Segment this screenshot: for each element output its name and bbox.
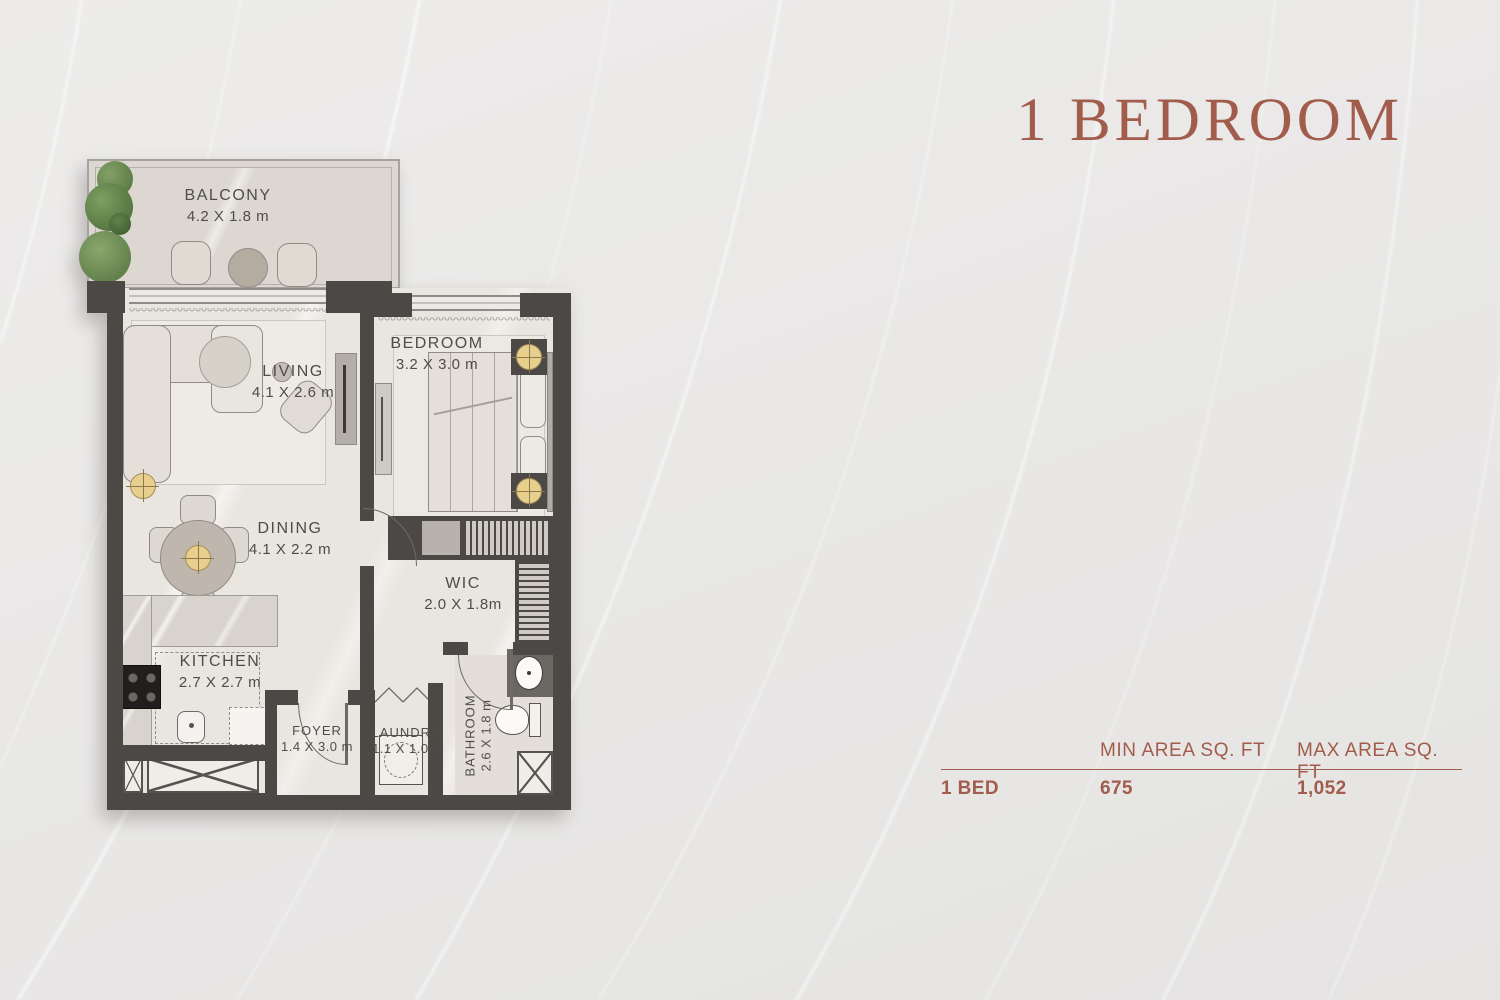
room-name: BATHROOM xyxy=(463,694,478,776)
room-label-wic: WIC 2.0 X 1.8m xyxy=(413,575,513,613)
tree-plant xyxy=(109,213,131,235)
sofa xyxy=(123,325,171,483)
closet-shelf xyxy=(422,521,460,555)
balcony-chair xyxy=(277,243,317,287)
wall-segment xyxy=(265,795,571,810)
wall-segment xyxy=(553,293,571,810)
room-dims: 2.0 X 1.8m xyxy=(413,596,513,613)
area-table: MIN AREA SQ. FT MAX AREA SQ. FT 1 BED 67… xyxy=(941,738,1462,800)
room-name: KITCHEN xyxy=(160,653,280,671)
page-title: 1 BEDROOM xyxy=(1016,90,1403,151)
wall-segment xyxy=(374,293,412,317)
room-name: FOYER xyxy=(269,723,365,738)
room-dims: 2.6 X 1.8 m xyxy=(479,694,494,776)
living-window xyxy=(129,288,326,304)
dresser-handle xyxy=(381,397,383,461)
row-label: 1 BED xyxy=(941,778,999,800)
room-label-kitchen: KITCHEN 2.7 X 2.7 m xyxy=(160,653,280,691)
wic-closet xyxy=(515,560,553,652)
shaft-box xyxy=(147,757,259,793)
tree-plant xyxy=(79,231,131,283)
ceiling-light xyxy=(516,344,542,370)
bedroom-window xyxy=(412,295,520,311)
room-dims: 4.1 X 2.6 m xyxy=(233,384,353,401)
min-area-header: MIN AREA SQ. FT xyxy=(1100,740,1265,762)
room-label-living: LIVING 4.1 X 2.6 m xyxy=(233,363,353,401)
room-name: LIVING xyxy=(233,363,353,381)
sink-drain xyxy=(527,671,531,675)
room-label-foyer: FOYER 1.4 X 3.0 m xyxy=(269,723,365,754)
x-mark xyxy=(149,759,257,791)
wall-segment xyxy=(107,745,267,761)
room-name: DINING xyxy=(230,520,350,538)
room-name: WIC xyxy=(413,575,513,593)
room-dims: 4.1 X 2.2 m xyxy=(230,541,350,558)
wall-segment xyxy=(107,285,123,810)
floorplan: BALCONY 4.2 X 1.8 m LIVING 4.1 X 2.6 m B… xyxy=(83,155,573,813)
curtain-symbol xyxy=(378,317,550,324)
stove xyxy=(121,665,161,709)
shaft-box xyxy=(123,757,143,793)
max-area-value: 1,052 xyxy=(1297,778,1347,800)
min-area-value: 675 xyxy=(1100,778,1133,800)
closet-hanging-rail xyxy=(519,564,549,648)
room-dims: 1.4 X 3.0 m xyxy=(269,739,365,754)
room-dims: 2.7 X 2.7 m xyxy=(160,674,280,691)
sink-faucet xyxy=(189,723,194,728)
balcony-table xyxy=(228,248,268,288)
wall-segment xyxy=(513,642,553,655)
room-label-bathroom: BATHROOM 2.6 X 1.8 m xyxy=(423,680,533,790)
wall-segment xyxy=(107,793,277,810)
ceiling-light xyxy=(130,473,156,499)
kitchen-counter xyxy=(143,595,278,647)
wall-segment xyxy=(87,281,125,313)
room-dims: 3.2 X 3.0 m xyxy=(377,356,497,373)
kitchen-appliance xyxy=(229,707,269,745)
wall-segment xyxy=(360,281,374,521)
room-name: BEDROOM xyxy=(377,335,497,353)
ceiling-light xyxy=(185,545,211,571)
closet-hanging-rail xyxy=(464,521,548,555)
room-dims: 4.2 X 1.8 m xyxy=(148,208,308,225)
room-label-bedroom: BEDROOM 3.2 X 3.0 m xyxy=(377,335,497,373)
table-rule xyxy=(941,769,1462,770)
room-name: BALCONY xyxy=(148,187,308,205)
bed xyxy=(428,352,518,512)
ceiling-light xyxy=(516,478,542,504)
wall-segment xyxy=(443,642,468,655)
x-mark xyxy=(125,759,141,791)
wall-segment xyxy=(265,690,298,705)
room-label-dining: DINING 4.1 X 2.2 m xyxy=(230,520,350,558)
room-label-balcony: BALCONY 4.2 X 1.8 m xyxy=(148,187,308,225)
wall-segment xyxy=(360,566,374,690)
curtain-symbol xyxy=(129,308,326,315)
bedroom-dresser xyxy=(375,383,392,475)
balcony-chair xyxy=(171,241,211,285)
